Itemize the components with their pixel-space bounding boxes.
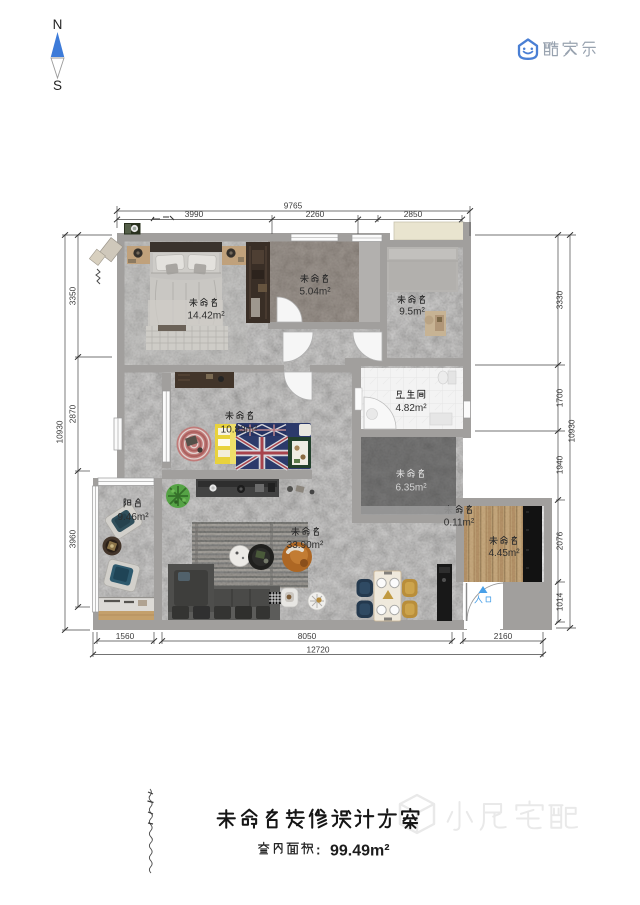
svg-text:9765: 9765 — [284, 201, 303, 211]
svg-text:0.11m²: 0.11m² — [444, 518, 475, 529]
svg-text:3990: 3990 — [185, 209, 204, 219]
svg-text:N: N — [53, 17, 63, 32]
svg-text:2076: 2076 — [555, 531, 565, 550]
svg-text:9.46m²: 9.46m² — [117, 512, 149, 523]
svg-text:8050: 8050 — [298, 631, 317, 641]
svg-text:2850: 2850 — [404, 209, 423, 219]
svg-text:1940: 1940 — [555, 455, 565, 474]
svg-text:33.90m²: 33.90m² — [287, 540, 324, 551]
svg-text:2870: 2870 — [68, 404, 78, 423]
svg-text:1700: 1700 — [555, 388, 565, 407]
svg-text:1014: 1014 — [555, 592, 565, 611]
svg-text:5.04m²: 5.04m² — [299, 287, 331, 298]
svg-text:14.42m²: 14.42m² — [187, 311, 225, 322]
svg-text:S: S — [53, 78, 62, 93]
svg-text:9.5m²: 9.5m² — [399, 307, 425, 318]
svg-text:3330: 3330 — [555, 290, 565, 309]
svg-text:2260: 2260 — [306, 209, 325, 219]
svg-text:1560: 1560 — [116, 631, 135, 641]
svg-text:12720: 12720 — [306, 645, 329, 655]
svg-text:4.45m²: 4.45m² — [488, 548, 520, 559]
svg-text:99.49m²: 99.49m² — [330, 843, 390, 860]
svg-text:3350: 3350 — [68, 286, 78, 305]
svg-text:10930: 10930 — [567, 419, 577, 442]
svg-text:2160: 2160 — [494, 631, 513, 641]
svg-text:4.82m²: 4.82m² — [395, 403, 427, 414]
svg-text:6.35m²: 6.35m² — [395, 483, 427, 494]
svg-text:10.83m²: 10.83m² — [221, 425, 258, 436]
svg-text:10930: 10930 — [55, 420, 65, 443]
svg-text:3960: 3960 — [68, 529, 78, 548]
svg-text::: : — [316, 843, 321, 858]
